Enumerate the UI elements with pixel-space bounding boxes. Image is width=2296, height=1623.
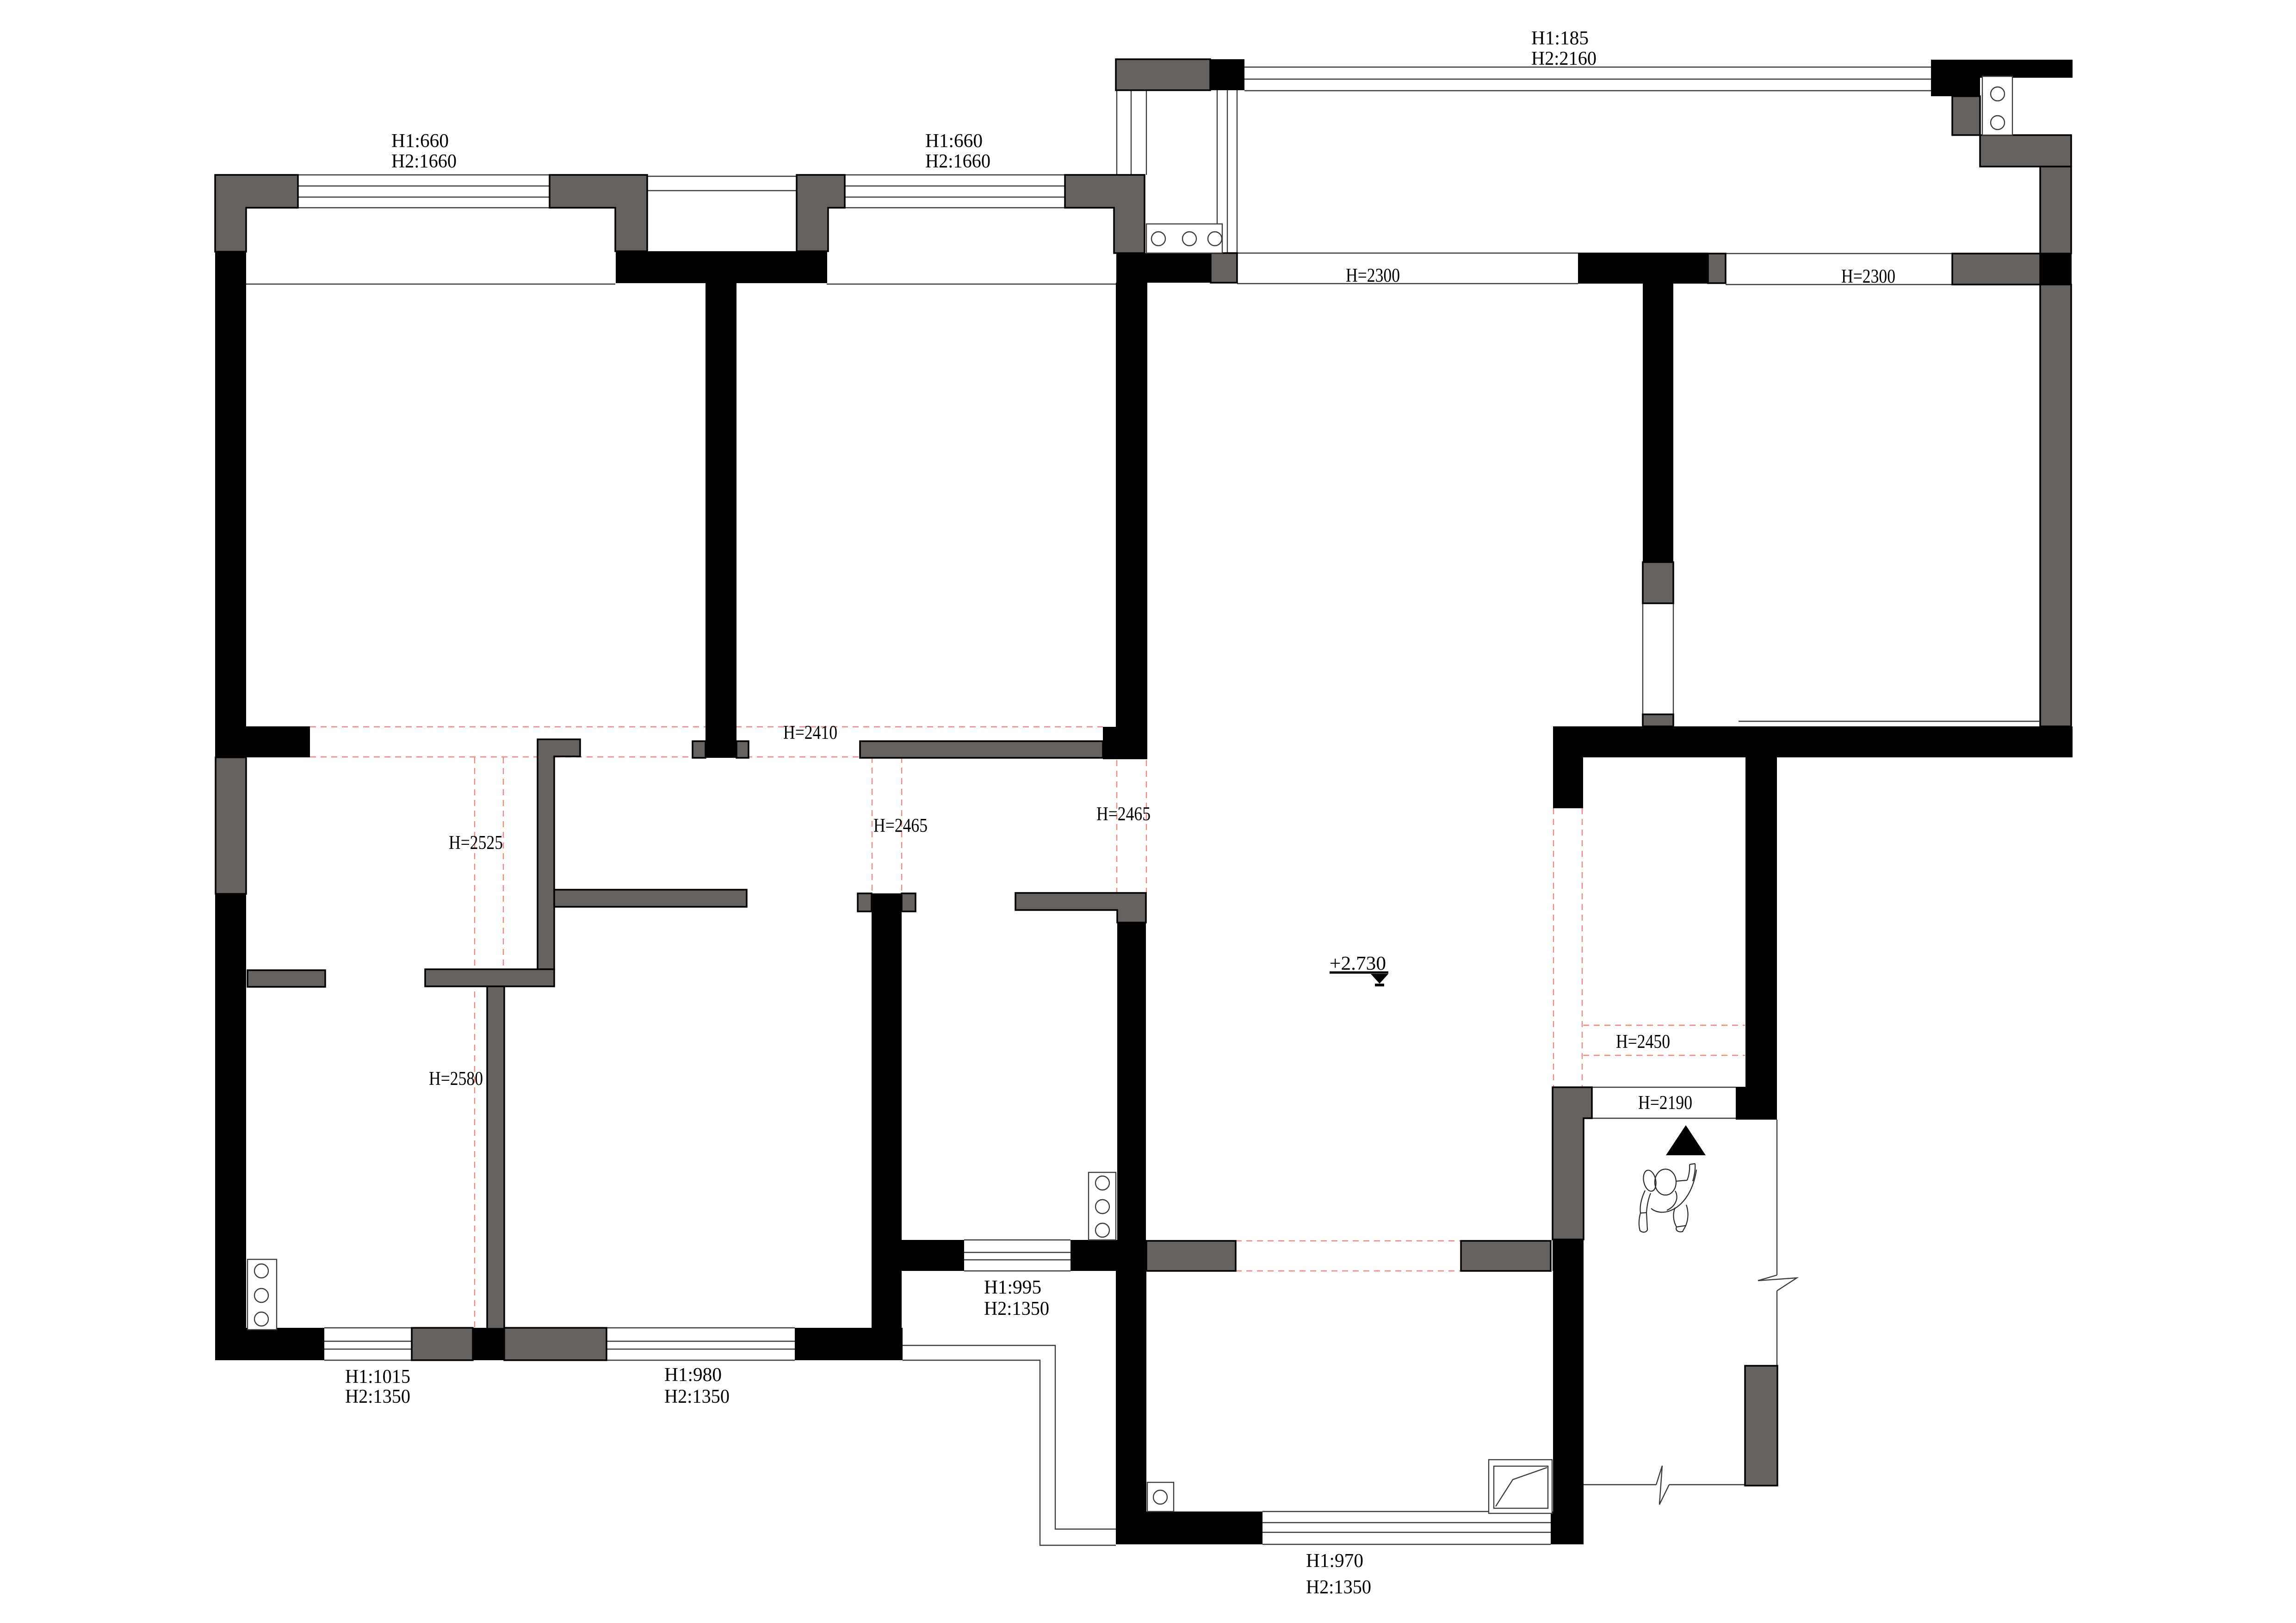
svg-text:H2:1350: H2:1350 bbox=[984, 1298, 1049, 1319]
svg-text:H1:980: H1:980 bbox=[664, 1364, 722, 1386]
svg-text:H1:1015: H1:1015 bbox=[345, 1366, 410, 1388]
svg-text:H2:1350: H2:1350 bbox=[1306, 1577, 1371, 1598]
svg-text:+2.730: +2.730 bbox=[1330, 953, 1386, 974]
svg-text:H1:995: H1:995 bbox=[984, 1277, 1041, 1298]
svg-text:H=2465: H=2465 bbox=[873, 815, 928, 836]
svg-text:H=2410: H=2410 bbox=[783, 722, 837, 743]
svg-text:H=2580: H=2580 bbox=[429, 1068, 483, 1090]
svg-text:H=2465: H=2465 bbox=[1096, 804, 1151, 825]
svg-text:H=2525: H=2525 bbox=[449, 832, 503, 854]
svg-text:H=2300: H=2300 bbox=[1841, 266, 1895, 287]
svg-text:H2:1660: H2:1660 bbox=[925, 151, 990, 172]
svg-text:H2:1350: H2:1350 bbox=[345, 1386, 410, 1407]
svg-text:H2:2160: H2:2160 bbox=[1531, 48, 1597, 69]
svg-text:H=2450: H=2450 bbox=[1616, 1031, 1670, 1053]
svg-text:H=2190: H=2190 bbox=[1638, 1092, 1692, 1114]
svg-text:H1:970: H1:970 bbox=[1306, 1550, 1363, 1572]
svg-text:H1:660: H1:660 bbox=[925, 130, 983, 152]
svg-text:H2:1660: H2:1660 bbox=[391, 151, 457, 172]
svg-text:H1:185: H1:185 bbox=[1531, 28, 1589, 49]
svg-text:H1:660: H1:660 bbox=[391, 130, 449, 152]
svg-text:H2:1350: H2:1350 bbox=[664, 1386, 730, 1407]
svg-text:H=2300: H=2300 bbox=[1346, 265, 1400, 286]
